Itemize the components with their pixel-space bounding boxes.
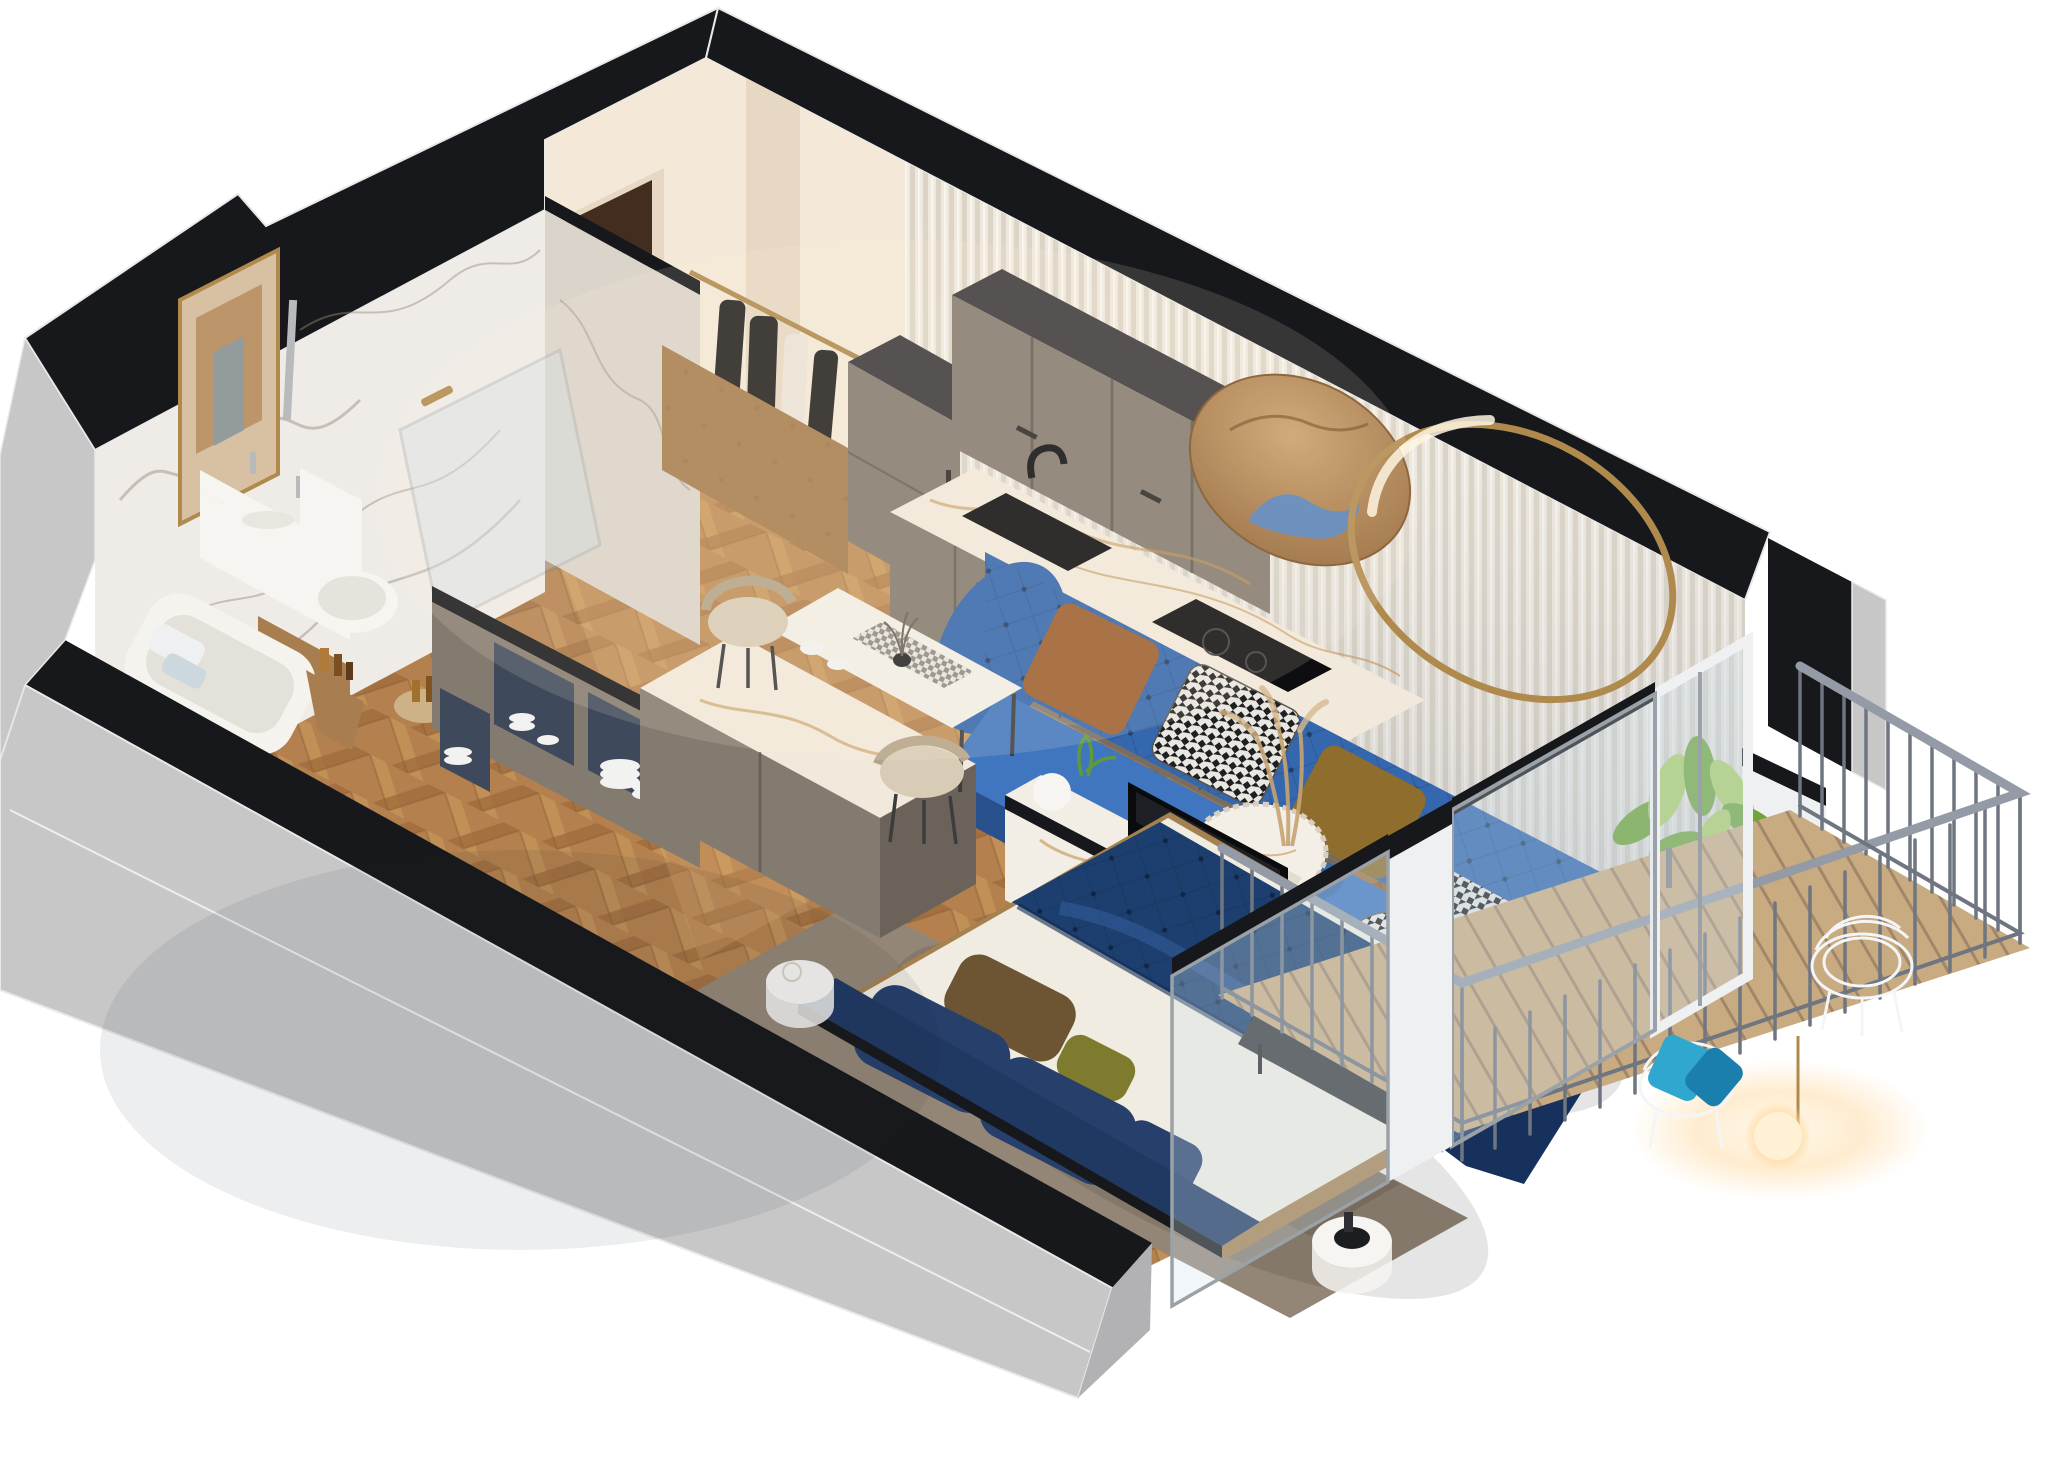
bedside-table: [1312, 1212, 1392, 1294]
floorplan-stage: [0, 0, 2048, 1467]
faucet: [250, 452, 256, 474]
ambient-shade: [100, 850, 940, 1250]
floorplan-render: [0, 0, 2048, 1467]
bottle: [346, 662, 353, 680]
vanity-mirror: [180, 250, 278, 524]
console-lamp: [1033, 773, 1071, 811]
bedside-bottle: [1344, 1212, 1353, 1232]
door-handle: [1666, 848, 1672, 888]
bottle: [320, 648, 329, 672]
bottle: [334, 654, 342, 676]
balcony-door: [1655, 640, 1748, 1030]
window-pillar: [1388, 824, 1452, 1182]
ambient-light: [380, 240, 1420, 760]
